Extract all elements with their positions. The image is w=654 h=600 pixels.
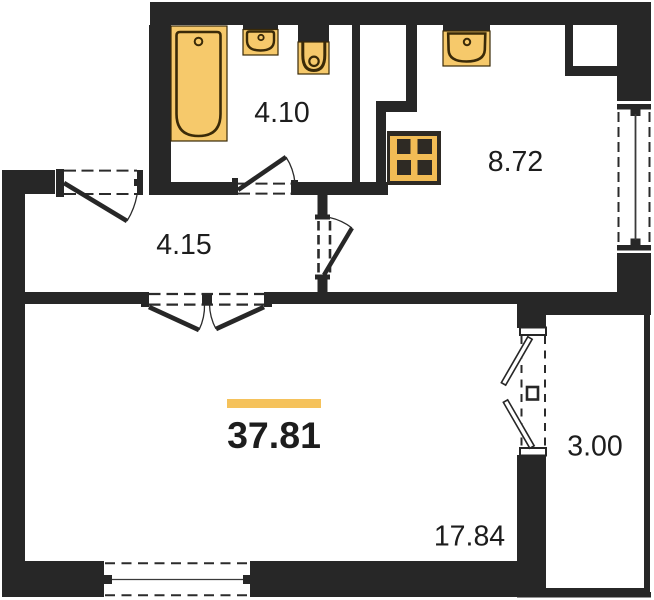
svg-text:4.10: 4.10 bbox=[254, 97, 309, 129]
svg-text:3.00: 3.00 bbox=[567, 431, 622, 463]
svg-text:8.72: 8.72 bbox=[488, 146, 543, 178]
svg-text:37.81: 37.81 bbox=[227, 414, 321, 456]
svg-text:17.84: 17.84 bbox=[434, 521, 505, 553]
svg-text:4.15: 4.15 bbox=[156, 229, 211, 261]
